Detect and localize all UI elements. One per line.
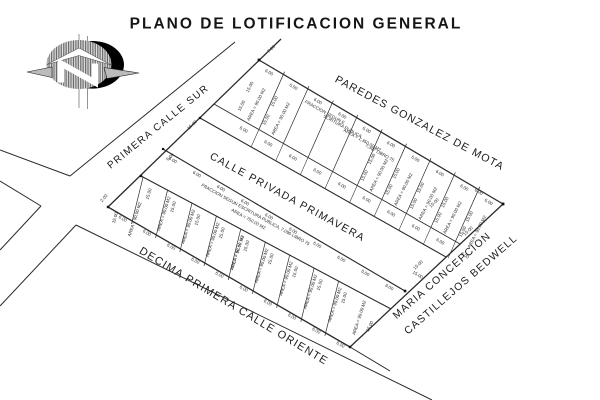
- svg-text:PLANO DE LOTIFICACION GENERAL: PLANO DE LOTIFICACION GENERAL: [130, 16, 463, 33]
